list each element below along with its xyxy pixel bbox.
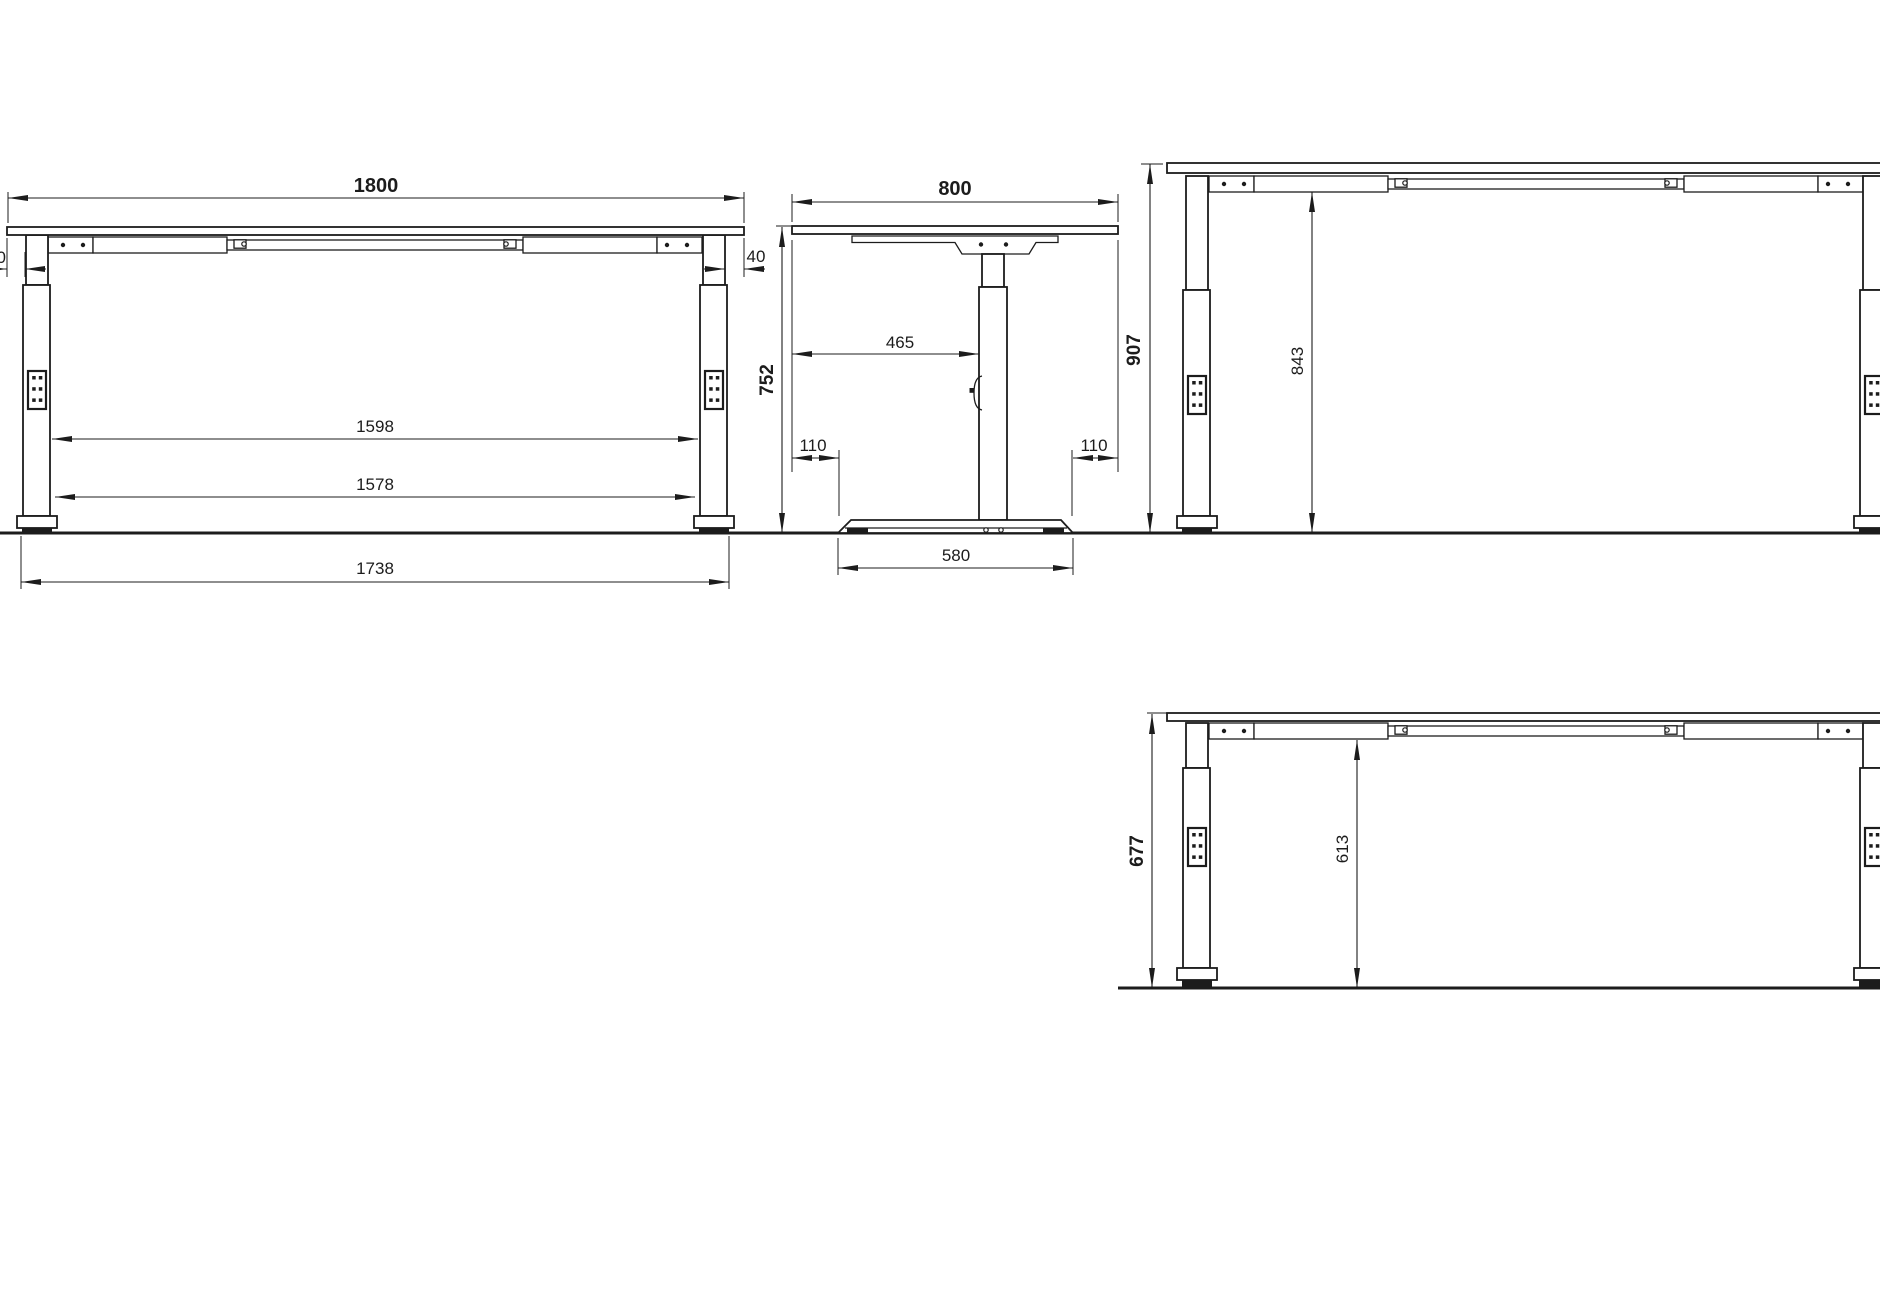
dim-clear-width-1598: 1598 (52, 417, 698, 439)
raised-right-leg (1854, 176, 1880, 534)
dim-label-752: 752 (757, 364, 778, 396)
side-foot (838, 520, 1073, 533)
side-view: 800 752 465 110 110 (757, 178, 1118, 575)
dim-rear-overhang-110: 110 (1072, 240, 1118, 516)
raised-crossbar (1209, 176, 1863, 192)
dim-label-110-front: 110 (799, 436, 826, 455)
dim-desk-height-677: 677 (1127, 713, 1168, 988)
dim-label-1800: 1800 (354, 175, 399, 197)
dim-clearance-843: 843 (1288, 192, 1312, 533)
dim-label-843: 843 (1288, 347, 1307, 375)
front-right-leg (694, 235, 734, 534)
dim-foot-length-580: 580 (838, 538, 1073, 575)
lowered-right-leg (1854, 723, 1880, 987)
front-view: 1800 40 40 1598 1578 (0, 175, 765, 589)
dim-label-580: 580 (942, 546, 970, 565)
lowered-tabletop (1167, 713, 1880, 721)
desk-dimension-drawing: 1800 40 40 1598 1578 (0, 0, 1880, 1293)
dim-label-613: 613 (1333, 835, 1352, 863)
dim-foot-span-1738: 1738 (21, 536, 729, 589)
dim-desk-height-752: 752 (757, 226, 791, 533)
dim-front-overhang-110: 110 (792, 436, 839, 516)
lowered-height-view: 677 613 (1127, 713, 1880, 988)
dim-clearance-613: 613 (1333, 740, 1357, 988)
foot-glide-pad (847, 528, 868, 533)
front-crossbar (48, 237, 702, 253)
dim-label-800: 800 (938, 178, 971, 200)
dim-label-1598: 1598 (356, 417, 394, 436)
dim-label-907: 907 (1124, 334, 1145, 366)
lowered-crossbar (1209, 723, 1863, 739)
raised-tabletop (1167, 163, 1880, 173)
dim-desk-height-907: 907 (1124, 164, 1163, 533)
dim-top-depth-800: 800 (792, 178, 1118, 222)
side-tabletop (792, 226, 1118, 234)
side-top-bracket (852, 236, 1058, 254)
dim-label-465: 465 (886, 333, 914, 352)
dim-clear-width-1578: 1578 (55, 475, 695, 497)
front-tabletop (7, 227, 744, 235)
side-upper-column (982, 254, 1004, 287)
dim-label-40-right: 40 (747, 247, 766, 266)
raised-height-view: 907 843 (1124, 163, 1880, 534)
cable-hook-clip (970, 388, 975, 393)
side-lower-column (979, 287, 1007, 520)
dim-label-1578: 1578 (356, 475, 394, 494)
dim-label-40-left: 40 (0, 248, 6, 267)
technical-drawing-page: 1800 40 40 1598 1578 (0, 0, 1880, 1293)
foot-glide-pad (1043, 528, 1064, 533)
dim-label-1738: 1738 (356, 559, 394, 578)
front-left-leg (17, 235, 57, 534)
raised-left-leg (1177, 176, 1217, 534)
dim-label-677: 677 (1127, 835, 1148, 867)
dim-label-110-rear: 110 (1080, 436, 1107, 455)
dim-top-width-1800: 1800 (8, 175, 744, 223)
lowered-left-leg (1177, 723, 1217, 987)
